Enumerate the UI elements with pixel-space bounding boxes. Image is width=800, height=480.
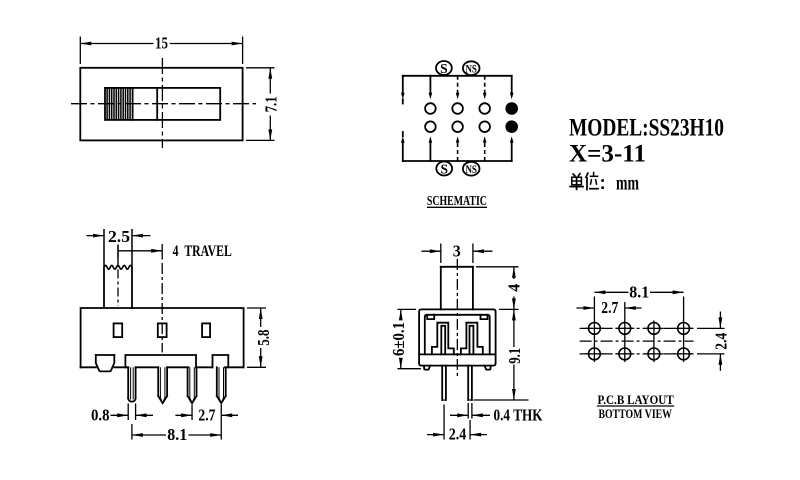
svg-text:8.1: 8.1 bbox=[167, 425, 187, 444]
svg-text:6±0.1: 6±0.1 bbox=[389, 322, 408, 356]
svg-text:2.7: 2.7 bbox=[198, 405, 215, 424]
svg-text:2.4: 2.4 bbox=[449, 425, 467, 444]
svg-text:mm: mm bbox=[616, 171, 639, 195]
svg-text:8.1: 8.1 bbox=[629, 282, 649, 301]
svg-text:NS: NS bbox=[465, 164, 477, 176]
svg-text:S: S bbox=[440, 62, 448, 77]
svg-text:0.4 THK: 0.4 THK bbox=[494, 405, 543, 424]
svg-text:X=3-11: X=3-11 bbox=[569, 139, 646, 168]
svg-text:P.C.B LAYOUT: P.C.B LAYOUT bbox=[597, 392, 674, 407]
svg-text:9.1: 9.1 bbox=[505, 348, 524, 364]
svg-text:NS: NS bbox=[465, 63, 477, 75]
svg-text:SCHEMATIC: SCHEMATIC bbox=[427, 193, 487, 208]
svg-text:S: S bbox=[440, 162, 448, 177]
svg-text:MODEL:SS23H10: MODEL:SS23H10 bbox=[569, 113, 724, 142]
svg-text:7.1: 7.1 bbox=[261, 96, 280, 112]
svg-text:5.8: 5.8 bbox=[254, 330, 273, 346]
svg-text:4 TRAVEL: 4 TRAVEL bbox=[173, 243, 232, 260]
svg-text:4: 4 bbox=[505, 284, 524, 292]
svg-text:2.7: 2.7 bbox=[601, 298, 618, 317]
svg-text:2.5: 2.5 bbox=[108, 227, 130, 246]
svg-text:3: 3 bbox=[453, 242, 461, 261]
svg-text:15: 15 bbox=[155, 34, 168, 53]
svg-text:BOTTOM VIEW: BOTTOM VIEW bbox=[598, 406, 672, 421]
svg-text:2.4: 2.4 bbox=[712, 333, 731, 350]
svg-text:0.8: 0.8 bbox=[91, 405, 110, 424]
